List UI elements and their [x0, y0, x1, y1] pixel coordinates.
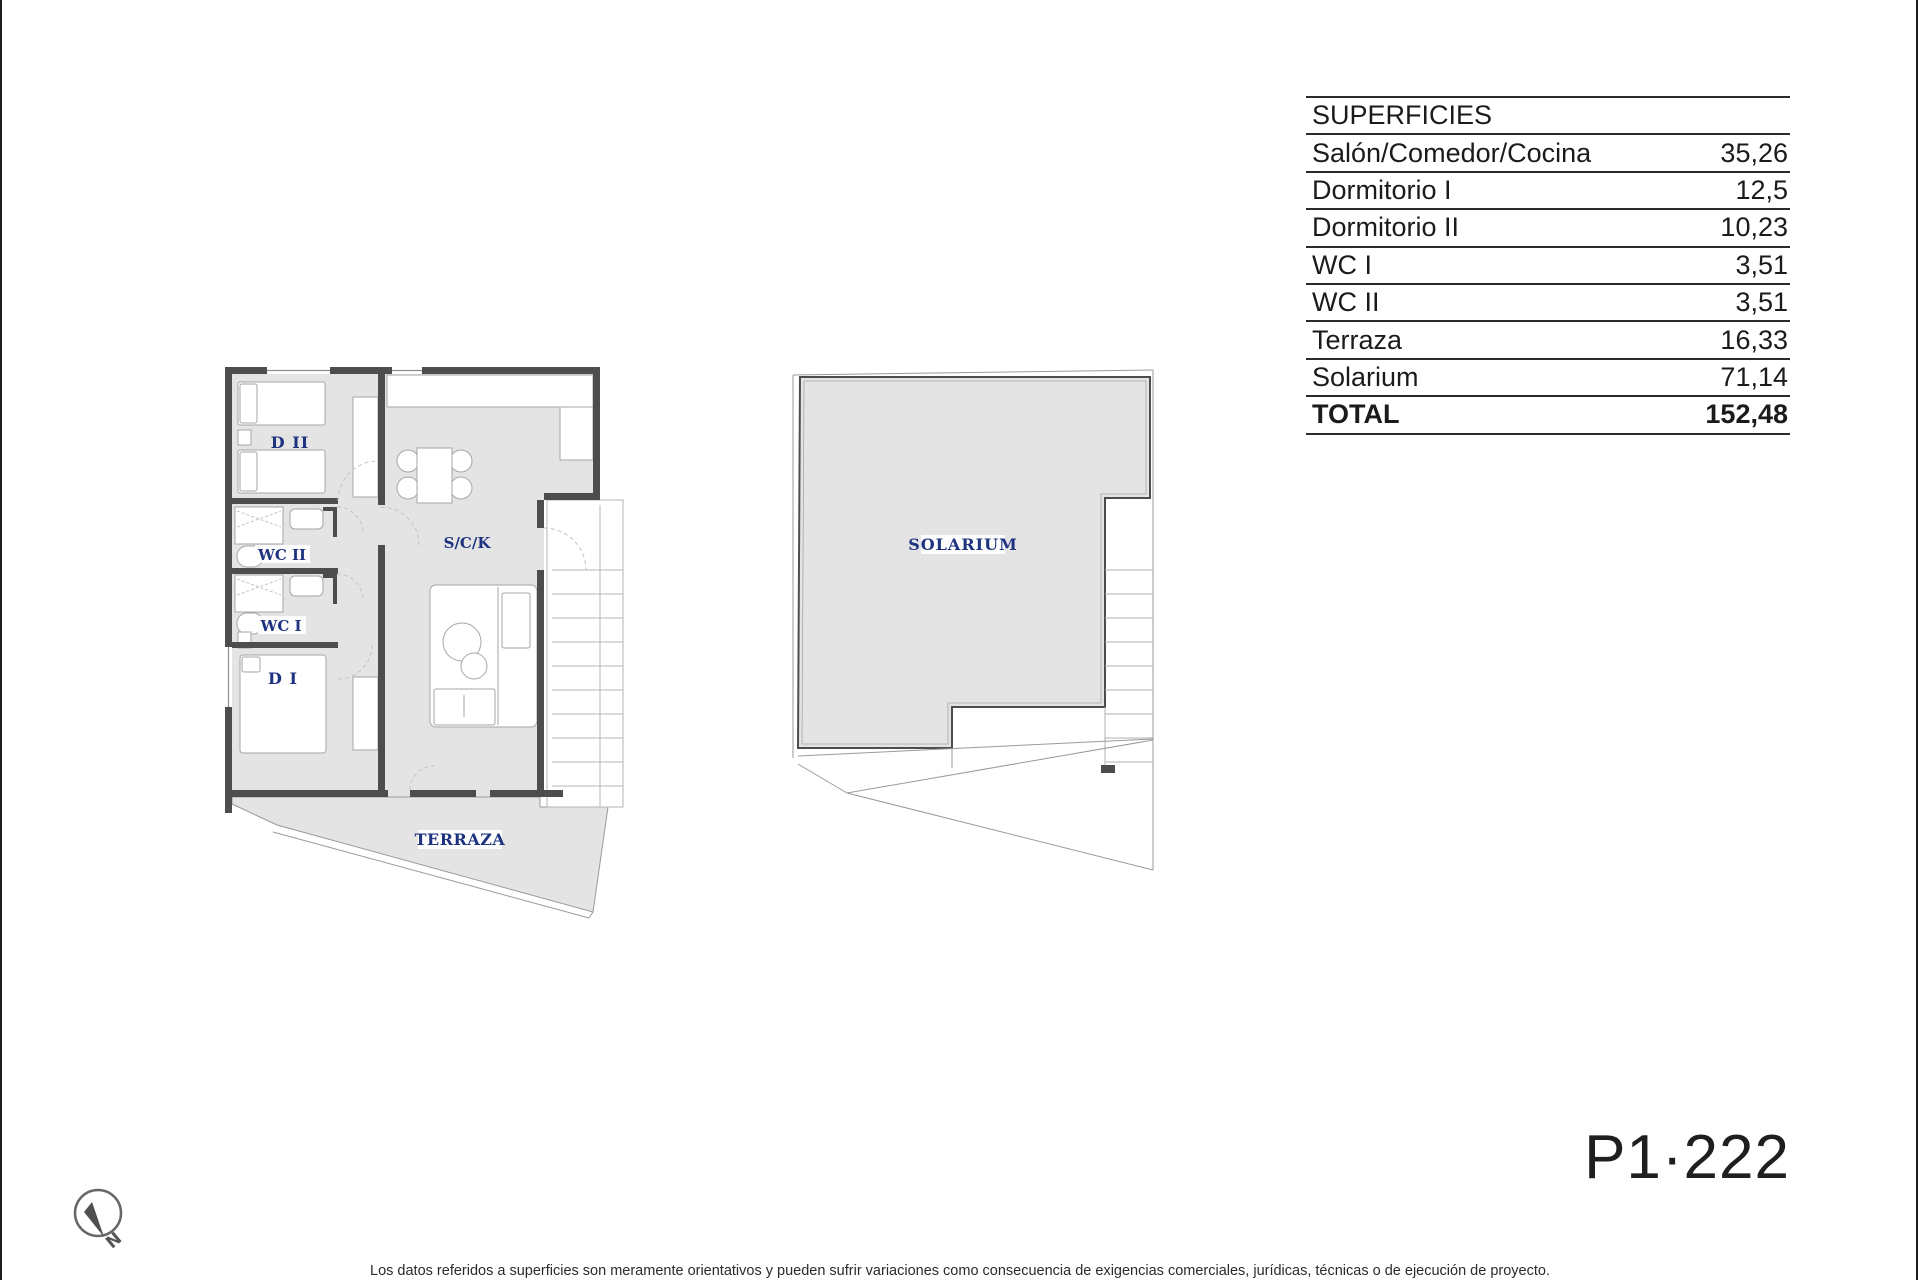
solarium-floorplan: SOLARIUM: [790, 360, 1180, 950]
surfaces-table: SUPERFICIES Salón/Comedor/Cocina 35,26 D…: [1306, 96, 1790, 435]
chair: [450, 477, 472, 499]
page-left-border: [0, 0, 2, 1280]
room-label-sck: S/C/K: [444, 534, 492, 552]
terraza-parapet-end: [589, 912, 593, 918]
row-value: 71,14: [1720, 360, 1790, 395]
surfaces-title: SUPERFICIES: [1306, 98, 1492, 133]
floorplan-sheet: { "surfaces_table": { "title": "SUPERFIC…: [0, 0, 1920, 1280]
stair-wall-cap: [1101, 765, 1115, 773]
disclaimer-text: Los datos referidos a superficies son me…: [0, 1263, 1920, 1279]
roof-outline: [798, 739, 1153, 870]
row-label: Salón/Comedor/Cocina: [1306, 136, 1591, 171]
total-label: TOTAL: [1306, 397, 1400, 432]
terraza-floor: [232, 797, 608, 912]
pillow: [240, 452, 257, 491]
surfaces-table-header: SUPERFICIES: [1306, 96, 1790, 133]
chair: [450, 450, 472, 472]
row-label: Dormitorio I: [1306, 173, 1452, 208]
table-row: Salón/Comedor/Cocina 35,26: [1306, 133, 1790, 170]
staircase: [1105, 570, 1153, 768]
room-label-d2: D II: [271, 433, 309, 452]
row-value: 3,51: [1735, 248, 1790, 283]
staircase: [547, 500, 623, 807]
row-label: Solarium: [1306, 360, 1419, 395]
wardrobe: [353, 677, 378, 750]
row-label: WC I: [1306, 248, 1372, 283]
row-label: WC II: [1306, 285, 1380, 320]
chair: [397, 450, 419, 472]
table-row: Dormitorio I 12,5: [1306, 171, 1790, 208]
north-compass: N: [60, 1180, 140, 1275]
nightstand: [238, 430, 251, 445]
table-row: Solarium 71,14: [1306, 358, 1790, 395]
row-value: 16,33: [1720, 323, 1790, 358]
chair: [397, 477, 419, 499]
table-row: WC II 3,51: [1306, 283, 1790, 320]
dining-table: [417, 448, 452, 503]
row-value: 10,23: [1720, 210, 1790, 245]
row-value: 3,51: [1735, 285, 1790, 320]
north-arrow-icon: [84, 1202, 104, 1237]
row-label: Terraza: [1306, 323, 1402, 358]
pillow: [242, 657, 260, 672]
wardrobe: [353, 397, 378, 497]
north-label: N: [102, 1229, 126, 1253]
plan-code: P1·222: [1584, 1122, 1790, 1193]
page-right-border: [1916, 0, 1918, 1280]
apartment-floorplan: D II WC II WC I D I S/C/K TERRAZA: [215, 355, 630, 950]
chaise: [502, 593, 530, 648]
room-label-solarium: SOLARIUM: [908, 535, 1018, 554]
room-label-wc2: WC II: [257, 546, 306, 564]
room-label-wc1: WC I: [259, 617, 301, 635]
table-row: Terraza 16,33: [1306, 320, 1790, 357]
pillow: [240, 384, 257, 423]
row-value: 12,5: [1735, 173, 1790, 208]
table-row-total: TOTAL 152,48: [1306, 395, 1790, 434]
sink: [290, 576, 323, 596]
row-label: Dormitorio II: [1306, 210, 1459, 245]
sink: [290, 509, 323, 529]
table-row: Dormitorio II 10,23: [1306, 208, 1790, 245]
room-label-d1: D I: [268, 669, 298, 688]
solarium-floor: [798, 377, 1150, 748]
table-row: WC I 3,51: [1306, 246, 1790, 283]
total-value: 152,48: [1705, 397, 1790, 432]
side-table: [461, 653, 487, 679]
room-label-terraza: TERRAZA: [415, 830, 506, 849]
sofa-group: [430, 585, 537, 727]
row-value: 35,26: [1720, 136, 1790, 171]
